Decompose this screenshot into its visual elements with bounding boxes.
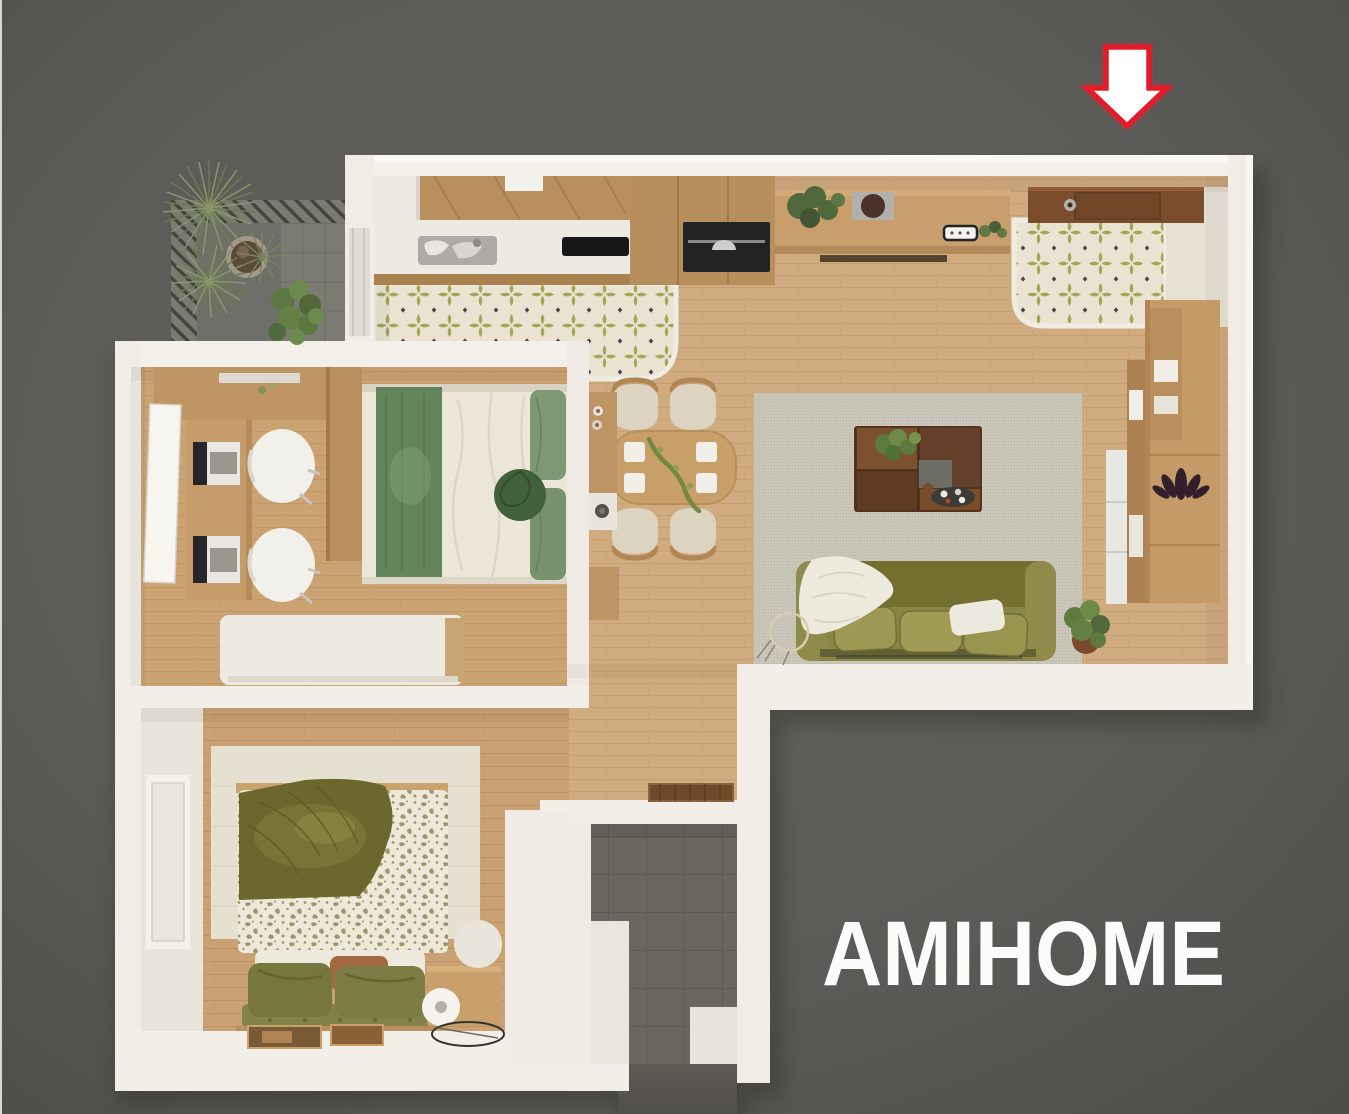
svg-text:AMIHOME: AMIHOME (822, 903, 1225, 1005)
